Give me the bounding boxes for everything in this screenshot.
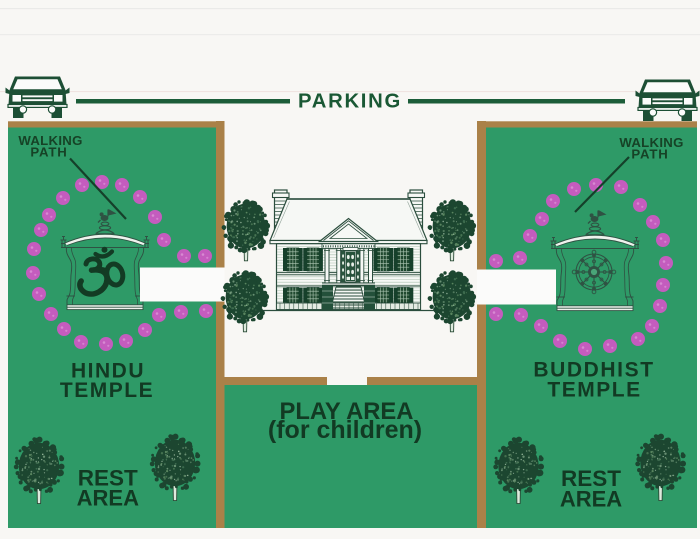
svg-text:TEMPLE: TEMPLE xyxy=(547,379,641,402)
svg-text:PARKING: PARKING xyxy=(298,91,402,113)
svg-text:TEMPLE: TEMPLE xyxy=(60,379,154,402)
svg-text:PATH: PATH xyxy=(30,145,67,160)
svg-text:AREA: AREA xyxy=(77,485,139,510)
svg-text:PATH: PATH xyxy=(631,147,668,162)
svg-text:AREA: AREA xyxy=(560,487,622,512)
svg-text:(for children): (for children) xyxy=(268,416,422,444)
